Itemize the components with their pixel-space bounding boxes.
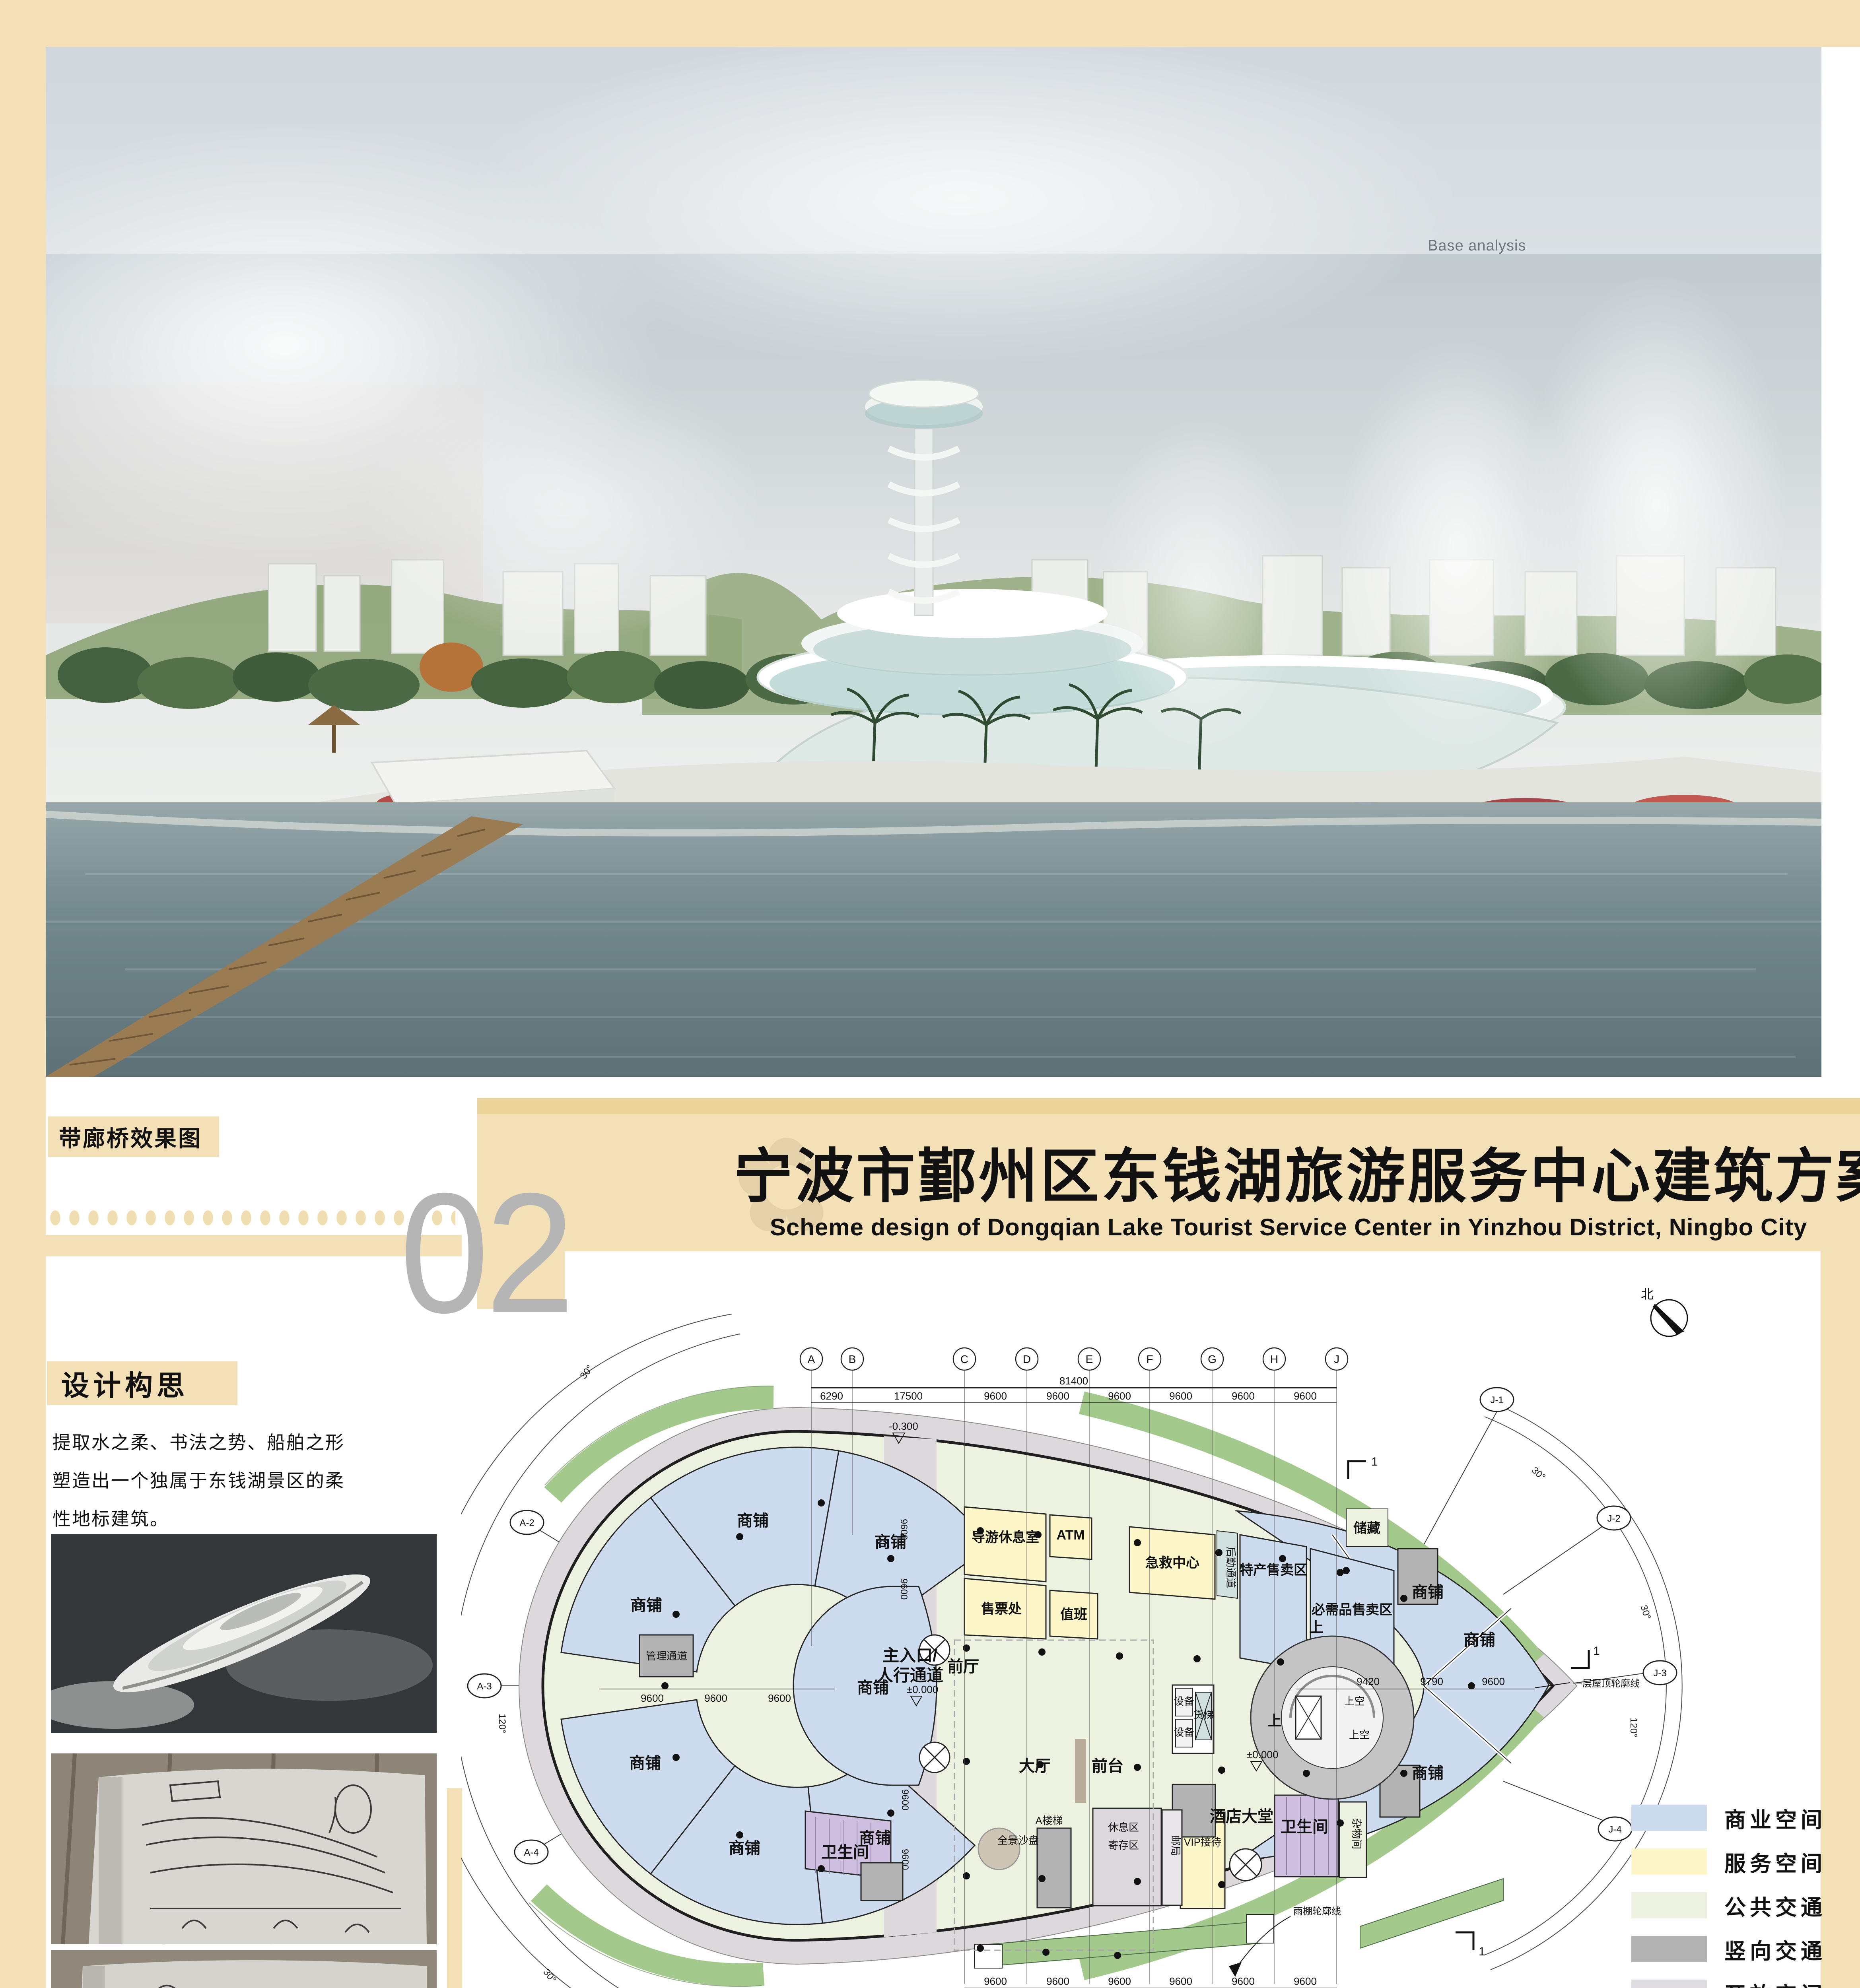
concept-line: 性地标建筑。 xyxy=(52,1500,450,1538)
axis-bubble: J-2 xyxy=(1607,1513,1620,1524)
room-label-sand-table: 全景沙盘 xyxy=(997,1835,1039,1846)
legend-swatch xyxy=(1631,1805,1707,1831)
room-label-freight: 货梯 xyxy=(1193,1709,1214,1721)
legend-item: 服务空间 xyxy=(1631,1848,1826,1875)
room-label-shop: 商铺 xyxy=(729,1840,760,1857)
room-label-storage: 储藏 xyxy=(1353,1521,1380,1536)
hero-illustration: Base analysis xyxy=(46,47,1821,1077)
concept-line: 提取水之柔、书法之势、船舶之形 xyxy=(52,1423,450,1462)
room-label-vip: VIP接待 xyxy=(1184,1836,1221,1848)
section-mark: 1 xyxy=(1479,1945,1485,1958)
room-label-shop: 商铺 xyxy=(629,1755,661,1772)
dim: 9600 xyxy=(984,1975,1007,1987)
dim: 9600 xyxy=(704,1692,727,1704)
section-mark: 1 xyxy=(1593,1644,1600,1658)
legend-swatch xyxy=(1631,1892,1707,1918)
level-label: ±0.000 xyxy=(1247,1749,1278,1761)
void-label: 上空 xyxy=(1344,1695,1365,1707)
room-label-shop: 商铺 xyxy=(1464,1631,1495,1649)
poster-title: 宁波市鄞州区东钱湖旅游服务中心建筑方案设计 xyxy=(734,1128,1843,1214)
angle-label: 30° xyxy=(1530,1465,1547,1482)
legend-item: 商业空间 xyxy=(1631,1805,1826,1831)
reference-image-yacht xyxy=(51,1534,437,1733)
up-label: 上 xyxy=(1309,1619,1324,1635)
room-label-front-hall: 前厅 xyxy=(947,1658,979,1675)
dim: 9600 xyxy=(1046,1390,1069,1402)
section-mark: 1 xyxy=(1371,1455,1378,1468)
sketch-image-1 xyxy=(51,1749,437,1940)
concept-line: 塑造出一个独属于东钱湖景区的柔 xyxy=(52,1462,450,1500)
room-label-shop: 商铺 xyxy=(875,1534,906,1551)
room-label-equipment: 设备 xyxy=(1174,1726,1194,1738)
north-label: 北 xyxy=(1641,1287,1654,1301)
entrance-label: 主入口/ xyxy=(882,1646,937,1665)
entrance-label: 人行通道 xyxy=(877,1666,943,1685)
up-label: 上 xyxy=(1267,1712,1282,1729)
room-label-luggage: 寄存区 xyxy=(1108,1839,1139,1851)
dim: 9600 xyxy=(1482,1675,1505,1687)
legend-label: 开放空间 xyxy=(1724,1977,1826,1988)
dim: 17500 xyxy=(894,1390,923,1402)
grid-letter: B xyxy=(849,1353,856,1365)
canopy-outline-label: 雨棚轮廓线 xyxy=(1293,1906,1341,1917)
room-label-atm: ATM xyxy=(1056,1528,1085,1543)
concept-heading-box: 设计构思 xyxy=(47,1361,237,1405)
dim: 9600 xyxy=(768,1692,791,1704)
dim: 9600 xyxy=(898,1578,909,1600)
concept-heading: 设计构思 xyxy=(61,1363,189,1404)
dim: 9600 xyxy=(900,1849,910,1870)
grid-letter: G xyxy=(1208,1353,1217,1365)
axis-bubble: J-3 xyxy=(1653,1668,1666,1679)
room-label-hotel-lobby: 酒店大堂 xyxy=(1210,1808,1273,1825)
room-label-restroom: 卫生间 xyxy=(821,1844,869,1861)
axis-bubble: A-3 xyxy=(477,1681,492,1692)
room-label-restroom: 卫生间 xyxy=(1281,1818,1328,1836)
angle-label: 30° xyxy=(541,1967,558,1985)
legend-label: 公共交通 xyxy=(1724,1890,1826,1921)
dim: 9600 xyxy=(641,1692,664,1704)
grid-letter: A xyxy=(808,1353,815,1365)
grid-letter: H xyxy=(1270,1353,1278,1365)
grid-letter: E xyxy=(1086,1353,1093,1365)
top-margin-band xyxy=(0,0,1860,47)
dim: 9600 xyxy=(1108,1975,1131,1987)
angle-label: 120° xyxy=(1628,1718,1639,1738)
level-label: ±0.000 xyxy=(907,1683,938,1695)
legend-item: 开放空间 xyxy=(1631,1980,1826,1988)
room-label-shop: 商铺 xyxy=(1412,1765,1444,1782)
legend-swatch xyxy=(1631,1980,1707,1988)
room-label-shop: 商铺 xyxy=(737,1512,769,1530)
dim: 9600 xyxy=(1294,1975,1317,1987)
room-label-specialty: 特产售卖区 xyxy=(1240,1563,1307,1578)
room-label-sundry: 杂物间 xyxy=(1351,1818,1362,1849)
legend-item: 公共交通 xyxy=(1631,1892,1826,1918)
room-label-rest: 休息区 xyxy=(1108,1821,1139,1833)
void-label: 上空 xyxy=(1349,1729,1370,1741)
beige-accent-strip xyxy=(447,1788,462,1988)
grid-letter: C xyxy=(960,1353,968,1365)
room-label-equipment: 设备 xyxy=(1174,1695,1194,1707)
axis-bubble: J-1 xyxy=(1490,1395,1503,1406)
dim: 9600 xyxy=(1232,1390,1255,1402)
room-label-mgmt: 管理通道 xyxy=(646,1650,687,1662)
dim: 9600 xyxy=(900,1789,910,1810)
room-label-guide-lounge: 导游休息室 xyxy=(972,1530,1039,1545)
legend-label: 服务空间 xyxy=(1724,1846,1826,1877)
axis-bubble: A-2 xyxy=(519,1518,534,1528)
room-label-stair-a: A楼梯 xyxy=(1035,1815,1063,1827)
axis-bubble: J-4 xyxy=(1608,1824,1621,1835)
grid-letter: J xyxy=(1334,1353,1339,1365)
sketch-image-2 xyxy=(51,1950,437,1988)
dim: 9600 xyxy=(1169,1975,1192,1987)
poster-subtitle: Scheme design of Dongqian Lake Tourist S… xyxy=(734,1213,1843,1241)
axis-bubble: A-4 xyxy=(524,1847,538,1858)
room-label-necessity: 必需品售卖区 xyxy=(1312,1602,1393,1617)
dim: 9600 xyxy=(1294,1390,1317,1402)
room-label-post: 邮局 xyxy=(1170,1835,1182,1856)
dim: 6290 xyxy=(820,1390,843,1402)
hero-rendering: Base analysis xyxy=(46,47,1821,1077)
dim: 9790 xyxy=(1420,1675,1443,1687)
room-label-shop: 商铺 xyxy=(1412,1584,1444,1601)
left-margin-band xyxy=(0,0,46,1988)
dim: 9600 xyxy=(984,1390,1007,1402)
dim: 9420 xyxy=(1357,1675,1380,1687)
hero-caption-box: 带廊桥效果图 xyxy=(48,1116,219,1157)
room-label-logistics: 后勤通道 xyxy=(1225,1547,1237,1588)
hero-caption-label: 带廊桥效果图 xyxy=(59,1121,202,1153)
dim: 9600 xyxy=(1169,1390,1192,1402)
angle-label: 30° xyxy=(578,1363,595,1381)
room-label-hall: 大厅 xyxy=(1019,1757,1051,1775)
legend-swatch xyxy=(1631,1848,1707,1875)
north-arrow-icon: 北 xyxy=(1641,1287,1687,1336)
legend-label: 竖向交通 xyxy=(1724,1934,1826,1965)
legend-label: 商业空间 xyxy=(1724,1802,1826,1834)
level-label: -0.300 xyxy=(889,1420,918,1432)
reception-desk xyxy=(1075,1739,1086,1803)
legend-item: 竖向交通 xyxy=(1631,1936,1826,1962)
angle-label: 120° xyxy=(497,1714,507,1734)
dim: 9600 xyxy=(1108,1390,1131,1402)
room-label-front-desk: 前台 xyxy=(1092,1757,1123,1775)
base-analysis-label: Base analysis xyxy=(1428,237,1526,254)
grid-letter: F xyxy=(1146,1353,1153,1365)
concept-text: 提取水之柔、书法之势、船舶之形 塑造出一个独属于东钱湖景区的柔 性地标建筑。 xyxy=(52,1423,450,1538)
room-label-ticket: 售票处 xyxy=(981,1602,1022,1617)
dim: 9600 xyxy=(1046,1975,1069,1987)
room-label-duty: 值班 xyxy=(1060,1607,1087,1622)
plan-legend: 商业空间 服务空间 公共交通 竖向交通 开放空间 卫生间 后勤空间 绿化 xyxy=(1631,1805,1826,1988)
roof-outline-label: 一层屋顶轮廓线 xyxy=(1573,1678,1640,1689)
room-label-first-aid: 急救中心 xyxy=(1145,1555,1199,1571)
angle-label: 30° xyxy=(1638,1604,1653,1621)
room-label-shop: 商铺 xyxy=(630,1597,662,1614)
grid-letter: D xyxy=(1023,1353,1031,1365)
title-band-top-strip xyxy=(477,1098,1860,1114)
presentation-board: Base analysis 带廊桥效果图 ✿ 宁波市鄞州区东钱湖旅游服务中心建筑… xyxy=(0,0,1860,1988)
legend-swatch xyxy=(1631,1936,1707,1962)
dim: 9600 xyxy=(1232,1975,1255,1987)
dim-total: 81400 xyxy=(1059,1375,1088,1387)
dotted-divider-top xyxy=(46,1210,455,1225)
